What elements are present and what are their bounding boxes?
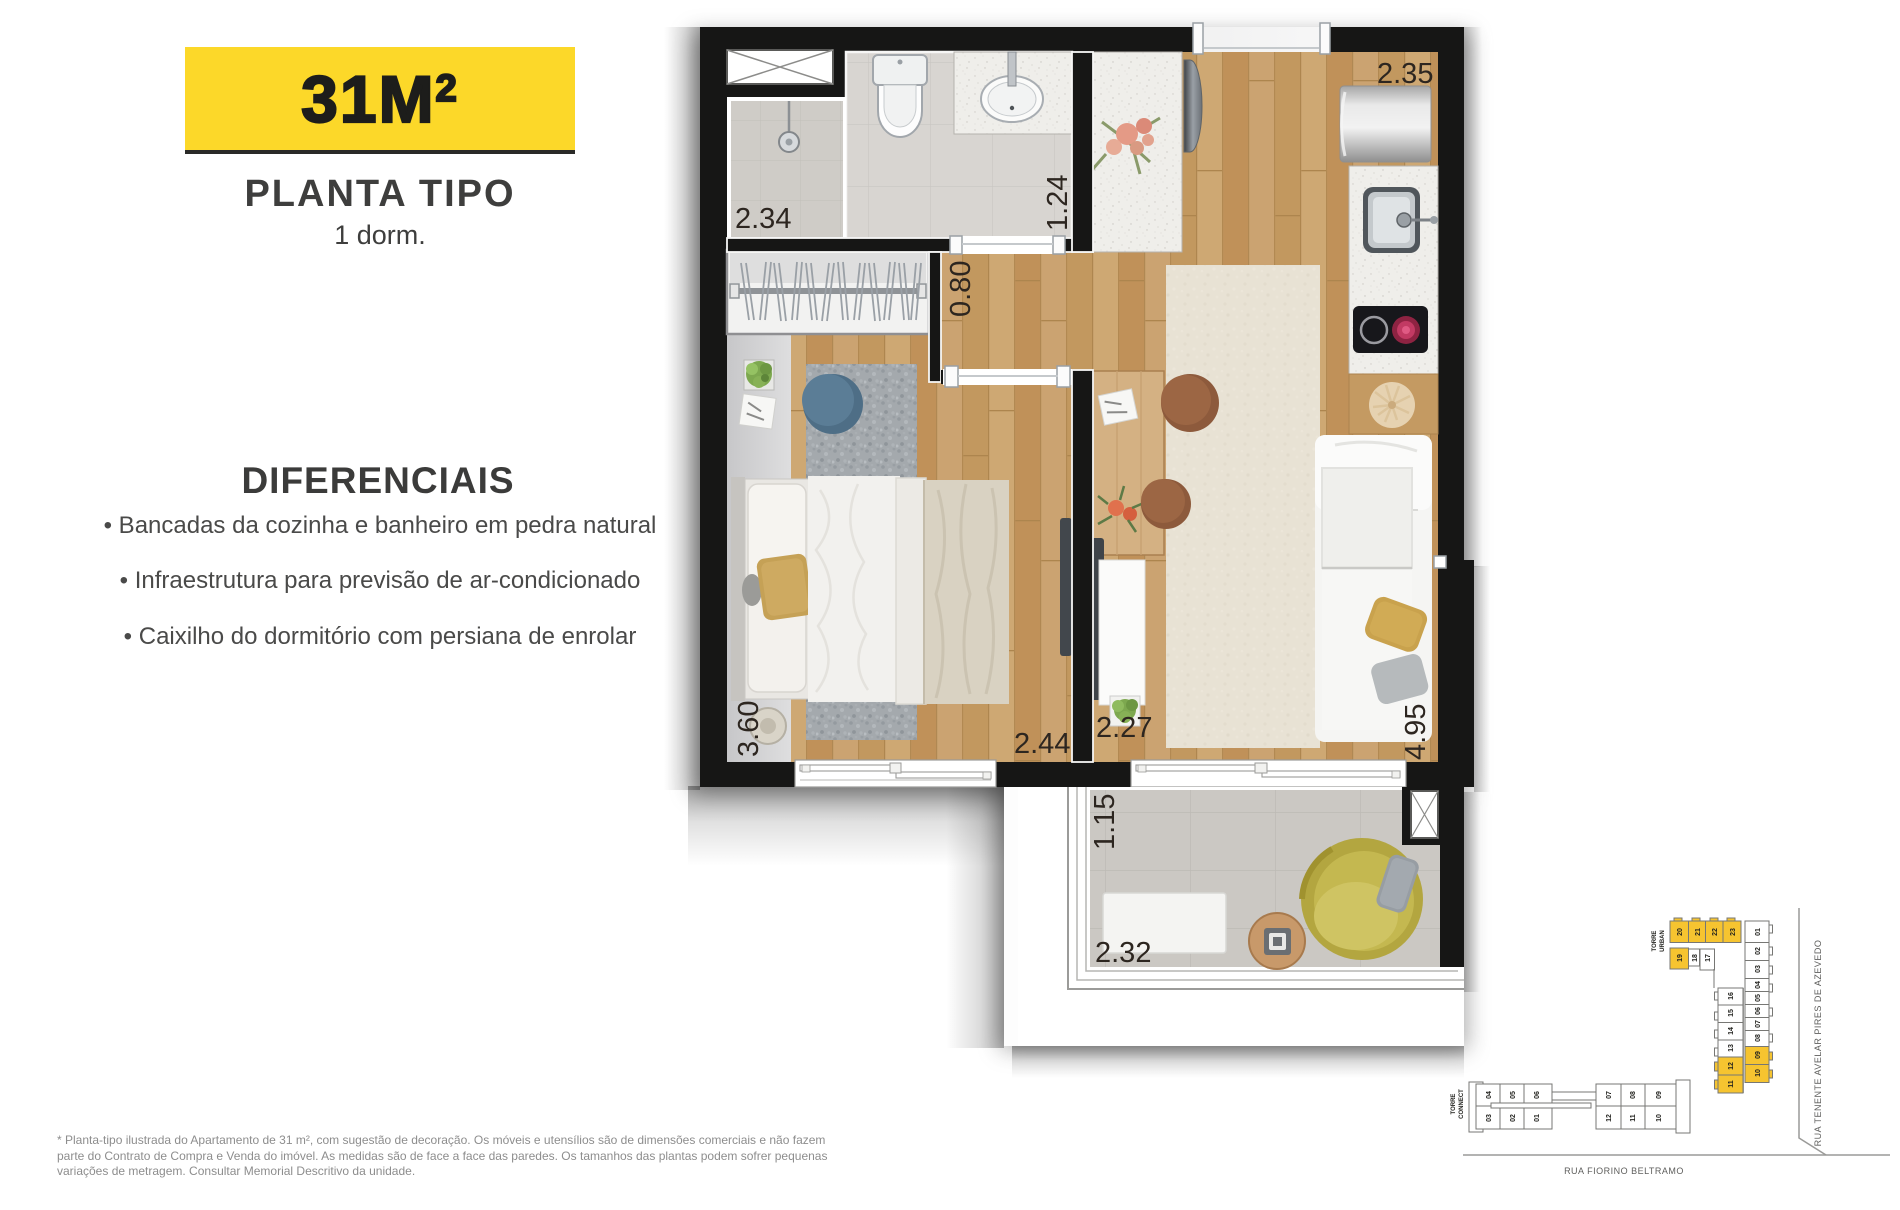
svg-text:URBAN: URBAN — [1660, 930, 1666, 952]
svg-text:13: 13 — [1728, 1044, 1735, 1052]
svg-text:05: 05 — [1755, 994, 1762, 1002]
svg-text:2.32: 2.32 — [1095, 937, 1151, 969]
svg-text:07: 07 — [1606, 1091, 1613, 1099]
svg-text:1.15: 1.15 — [1089, 794, 1121, 850]
svg-text:2.44: 2.44 — [1014, 728, 1070, 760]
svg-text:RUA FIORINO BELTRAMO: RUA FIORINO BELTRAMO — [1564, 1166, 1684, 1176]
svg-text:01: 01 — [1755, 928, 1762, 936]
svg-text:CONNECT: CONNECT — [1459, 1089, 1465, 1119]
svg-text:16: 16 — [1728, 992, 1735, 1000]
svg-text:07: 07 — [1755, 1020, 1762, 1028]
svg-text:09: 09 — [1755, 1051, 1762, 1059]
svg-text:RUA TENENTE AVELAR PIRES DE AZ: RUA TENENTE AVELAR PIRES DE AZEVEDO — [1813, 940, 1823, 1147]
svg-text:03: 03 — [1755, 965, 1762, 973]
svg-text:06: 06 — [1755, 1007, 1762, 1015]
svg-text:14: 14 — [1728, 1027, 1735, 1035]
svg-text:04: 04 — [1486, 1091, 1493, 1099]
svg-text:08: 08 — [1630, 1091, 1637, 1099]
svg-text:2.35: 2.35 — [1377, 58, 1433, 90]
svg-text:05: 05 — [1510, 1091, 1517, 1099]
svg-text:11: 11 — [1728, 1080, 1735, 1088]
svg-text:02: 02 — [1510, 1114, 1517, 1122]
svg-text:17: 17 — [1705, 954, 1712, 962]
svg-text:3.60: 3.60 — [733, 701, 765, 757]
svg-text:19: 19 — [1677, 954, 1684, 962]
svg-text:TORRE: TORRE — [1652, 931, 1658, 952]
svg-text:10: 10 — [1755, 1069, 1762, 1077]
svg-text:03: 03 — [1486, 1114, 1493, 1122]
svg-text:08: 08 — [1755, 1034, 1762, 1042]
svg-text:01: 01 — [1534, 1114, 1541, 1122]
svg-text:09: 09 — [1656, 1091, 1663, 1099]
svg-text:12: 12 — [1606, 1114, 1613, 1122]
svg-text:18: 18 — [1692, 954, 1699, 962]
svg-text:10: 10 — [1656, 1114, 1663, 1122]
svg-text:4.95: 4.95 — [1400, 704, 1432, 760]
svg-text:11: 11 — [1630, 1114, 1637, 1122]
svg-text:2.27: 2.27 — [1096, 712, 1152, 744]
svg-text:23: 23 — [1730, 928, 1737, 936]
svg-text:21: 21 — [1695, 928, 1702, 936]
svg-text:06: 06 — [1534, 1091, 1541, 1099]
svg-text:20: 20 — [1677, 928, 1684, 936]
svg-text:15: 15 — [1728, 1009, 1735, 1017]
svg-text:12: 12 — [1728, 1062, 1735, 1070]
svg-text:22: 22 — [1712, 928, 1719, 936]
svg-text:02: 02 — [1755, 947, 1762, 955]
svg-text:1.24: 1.24 — [1042, 175, 1074, 231]
svg-text:04: 04 — [1755, 981, 1762, 989]
svg-text:2.34: 2.34 — [735, 203, 791, 235]
svg-text:0.80: 0.80 — [945, 261, 977, 317]
svg-text:TORRE: TORRE — [1451, 1094, 1457, 1115]
